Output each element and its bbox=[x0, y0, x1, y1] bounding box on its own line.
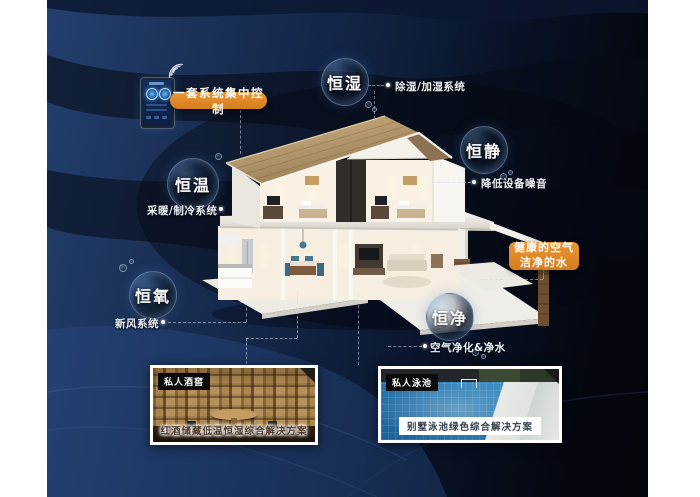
connector-highlight bbox=[480, 279, 543, 280]
highlight-line2: 洁净的水 bbox=[514, 256, 574, 271]
bullet-purify bbox=[423, 344, 427, 348]
phone-row bbox=[146, 104, 167, 106]
label-noise-reduction: 降低设备噪音 bbox=[481, 176, 547, 191]
label-hvac-system: 采暖/制冷系统 bbox=[147, 203, 217, 218]
mini-bubble bbox=[129, 259, 134, 264]
bubble-constant-quiet: 恒静 bbox=[460, 126, 508, 174]
mini-bubble bbox=[215, 153, 222, 160]
bubble-label: 恒静 bbox=[466, 138, 502, 162]
connector-wine-v2 bbox=[246, 338, 247, 364]
label-humidity-system: 除湿/加湿系统 bbox=[395, 79, 465, 94]
control-label: 一套系统集中控制 bbox=[170, 85, 267, 117]
phone-knob-left bbox=[146, 88, 158, 100]
bullet-fresh-air bbox=[161, 320, 165, 324]
bullet-hvac bbox=[219, 207, 223, 211]
bubble-label: 恒净 bbox=[432, 305, 468, 329]
connector-humidity-lead bbox=[368, 85, 384, 86]
control-label-box: 一套系统集中控制 bbox=[170, 92, 267, 109]
bullet-quiet bbox=[472, 180, 476, 184]
wine-corner-ribbon bbox=[300, 368, 315, 383]
connector-control bbox=[240, 110, 241, 154]
bubble-constant-oxygen: 恒氧 bbox=[129, 271, 177, 319]
bubble-constant-humidity: 恒湿 bbox=[321, 58, 369, 106]
label-purify-system: 空气净化&净水 bbox=[430, 340, 506, 355]
connector-fresh-air bbox=[168, 322, 246, 323]
connector-pool bbox=[358, 295, 359, 365]
mini-bubble bbox=[372, 107, 377, 112]
connector-wine-v1 bbox=[297, 292, 298, 338]
mini-bubble bbox=[508, 170, 513, 175]
pool-caption-wrap: 别墅泳池绿色综合解决方案 bbox=[381, 415, 559, 435]
wifi-icon bbox=[168, 63, 185, 78]
connector-purify bbox=[388, 346, 422, 347]
mini-bubble bbox=[119, 264, 127, 272]
phone-screen-titlebar bbox=[149, 82, 164, 85]
wine-photo-tag: 私人酒窖 bbox=[158, 373, 210, 390]
mini-bubble bbox=[365, 101, 372, 108]
pool-photo-tag: 私人泳池 bbox=[386, 374, 438, 391]
pool-ladder bbox=[461, 379, 477, 388]
poster: 一套系统集中控制 恒湿 除湿/加湿系统 恒静 降低设备噪音 恒温 采暖/制冷系统… bbox=[0, 0, 700, 497]
label-fresh-air-system: 新风系统 bbox=[115, 316, 159, 331]
phone-segment bbox=[162, 116, 167, 119]
bubble-label: 恒温 bbox=[175, 172, 211, 196]
pool-corner-ribbon bbox=[544, 369, 559, 384]
bubble-label: 恒湿 bbox=[327, 70, 363, 94]
connector-humidity bbox=[374, 91, 375, 119]
pool-photo-caption: 别墅泳池绿色综合解决方案 bbox=[399, 417, 541, 435]
connector-quiet bbox=[432, 182, 471, 183]
connector-wine-h bbox=[246, 338, 297, 339]
bubble-label: 恒氧 bbox=[135, 283, 171, 307]
wine-photo-caption: 红酒储藏低温恒湿综合解决方案 bbox=[153, 423, 315, 437]
pool-photo: 私人泳池 别墅泳池绿色综合解决方案 bbox=[378, 366, 562, 443]
highlight-line1: 健康的空气 bbox=[514, 241, 574, 256]
wine-cellar-photo: 私人酒窖 红酒储藏低温恒湿综合解决方案 bbox=[150, 365, 318, 445]
house-cutaway-illustration bbox=[195, 108, 565, 338]
highlight-box: 健康的空气 洁净的水 bbox=[509, 242, 579, 270]
phone-screen bbox=[143, 80, 172, 126]
bubble-constant-purity: 恒净 bbox=[426, 293, 474, 341]
connector-fresh-air-v bbox=[246, 302, 247, 322]
phone-segment bbox=[146, 116, 151, 119]
bullet-humidity bbox=[386, 83, 390, 87]
phone-segment bbox=[154, 116, 159, 119]
poster-content: 一套系统集中控制 恒湿 除湿/加湿系统 恒静 降低设备噪音 恒温 采暖/制冷系统… bbox=[47, 0, 648, 497]
phone-row bbox=[146, 109, 167, 111]
